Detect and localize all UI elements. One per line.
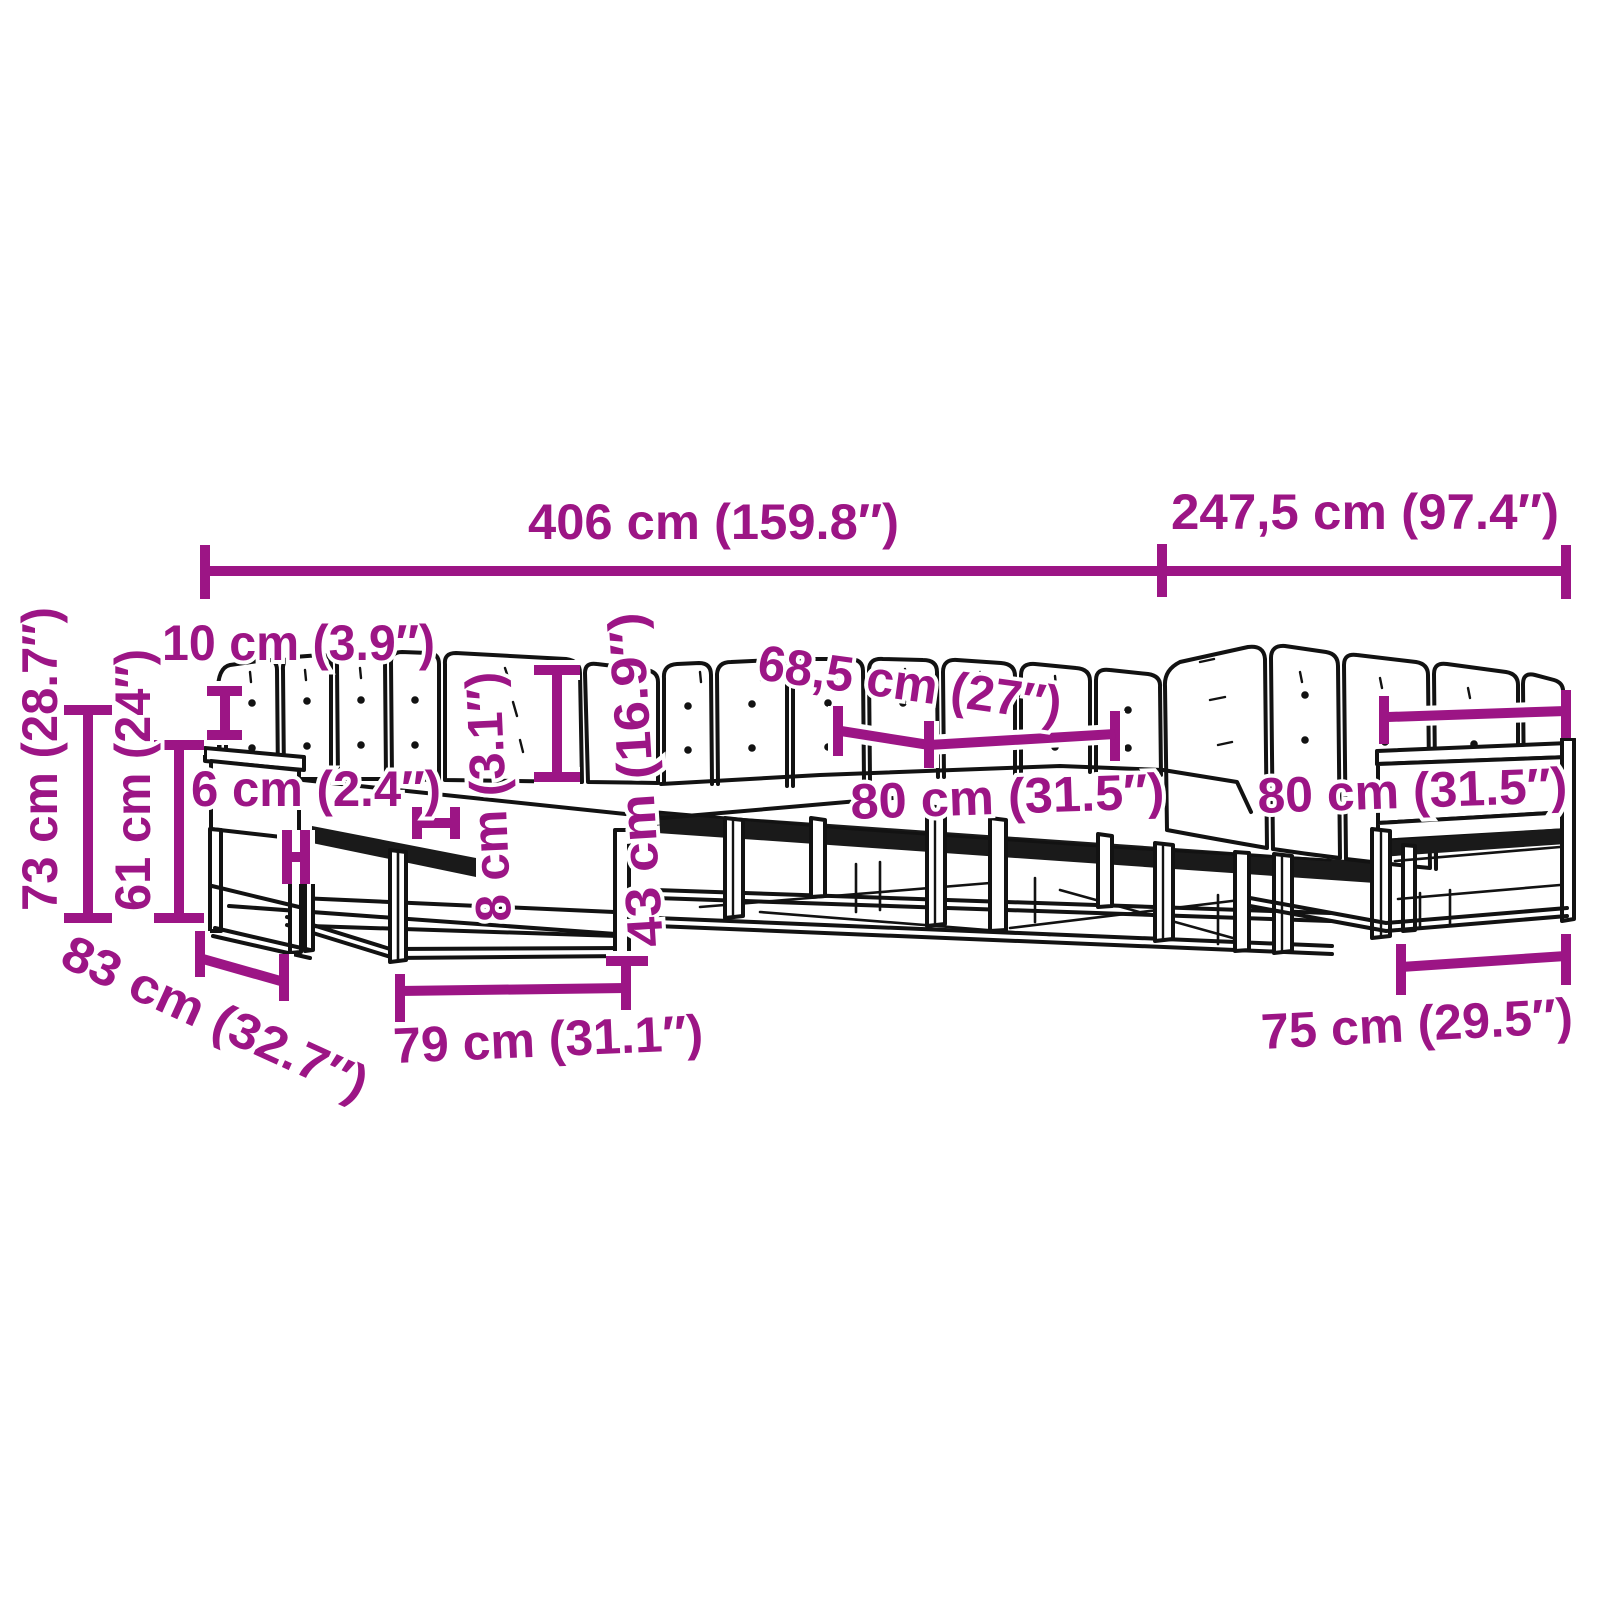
svg-text:80 cm (31.5″): 80 cm (31.5″) xyxy=(1256,757,1568,824)
svg-text:406 cm (159.8″): 406 cm (159.8″) xyxy=(528,494,899,550)
svg-text:8 cm (3.1″): 8 cm (3.1″) xyxy=(455,671,522,923)
svg-text:10 cm (3.9″): 10 cm (3.9″) xyxy=(162,615,435,671)
svg-text:80 cm (31.5″): 80 cm (31.5″) xyxy=(849,763,1165,830)
svg-text:247,5 cm (97.4″): 247,5 cm (97.4″) xyxy=(1171,484,1559,540)
svg-text:6 cm (2.4″): 6 cm (2.4″) xyxy=(191,761,441,817)
svg-text:73 cm (28.7″): 73 cm (28.7″) xyxy=(12,607,68,911)
svg-text:61 cm (24″): 61 cm (24″) xyxy=(105,649,161,911)
